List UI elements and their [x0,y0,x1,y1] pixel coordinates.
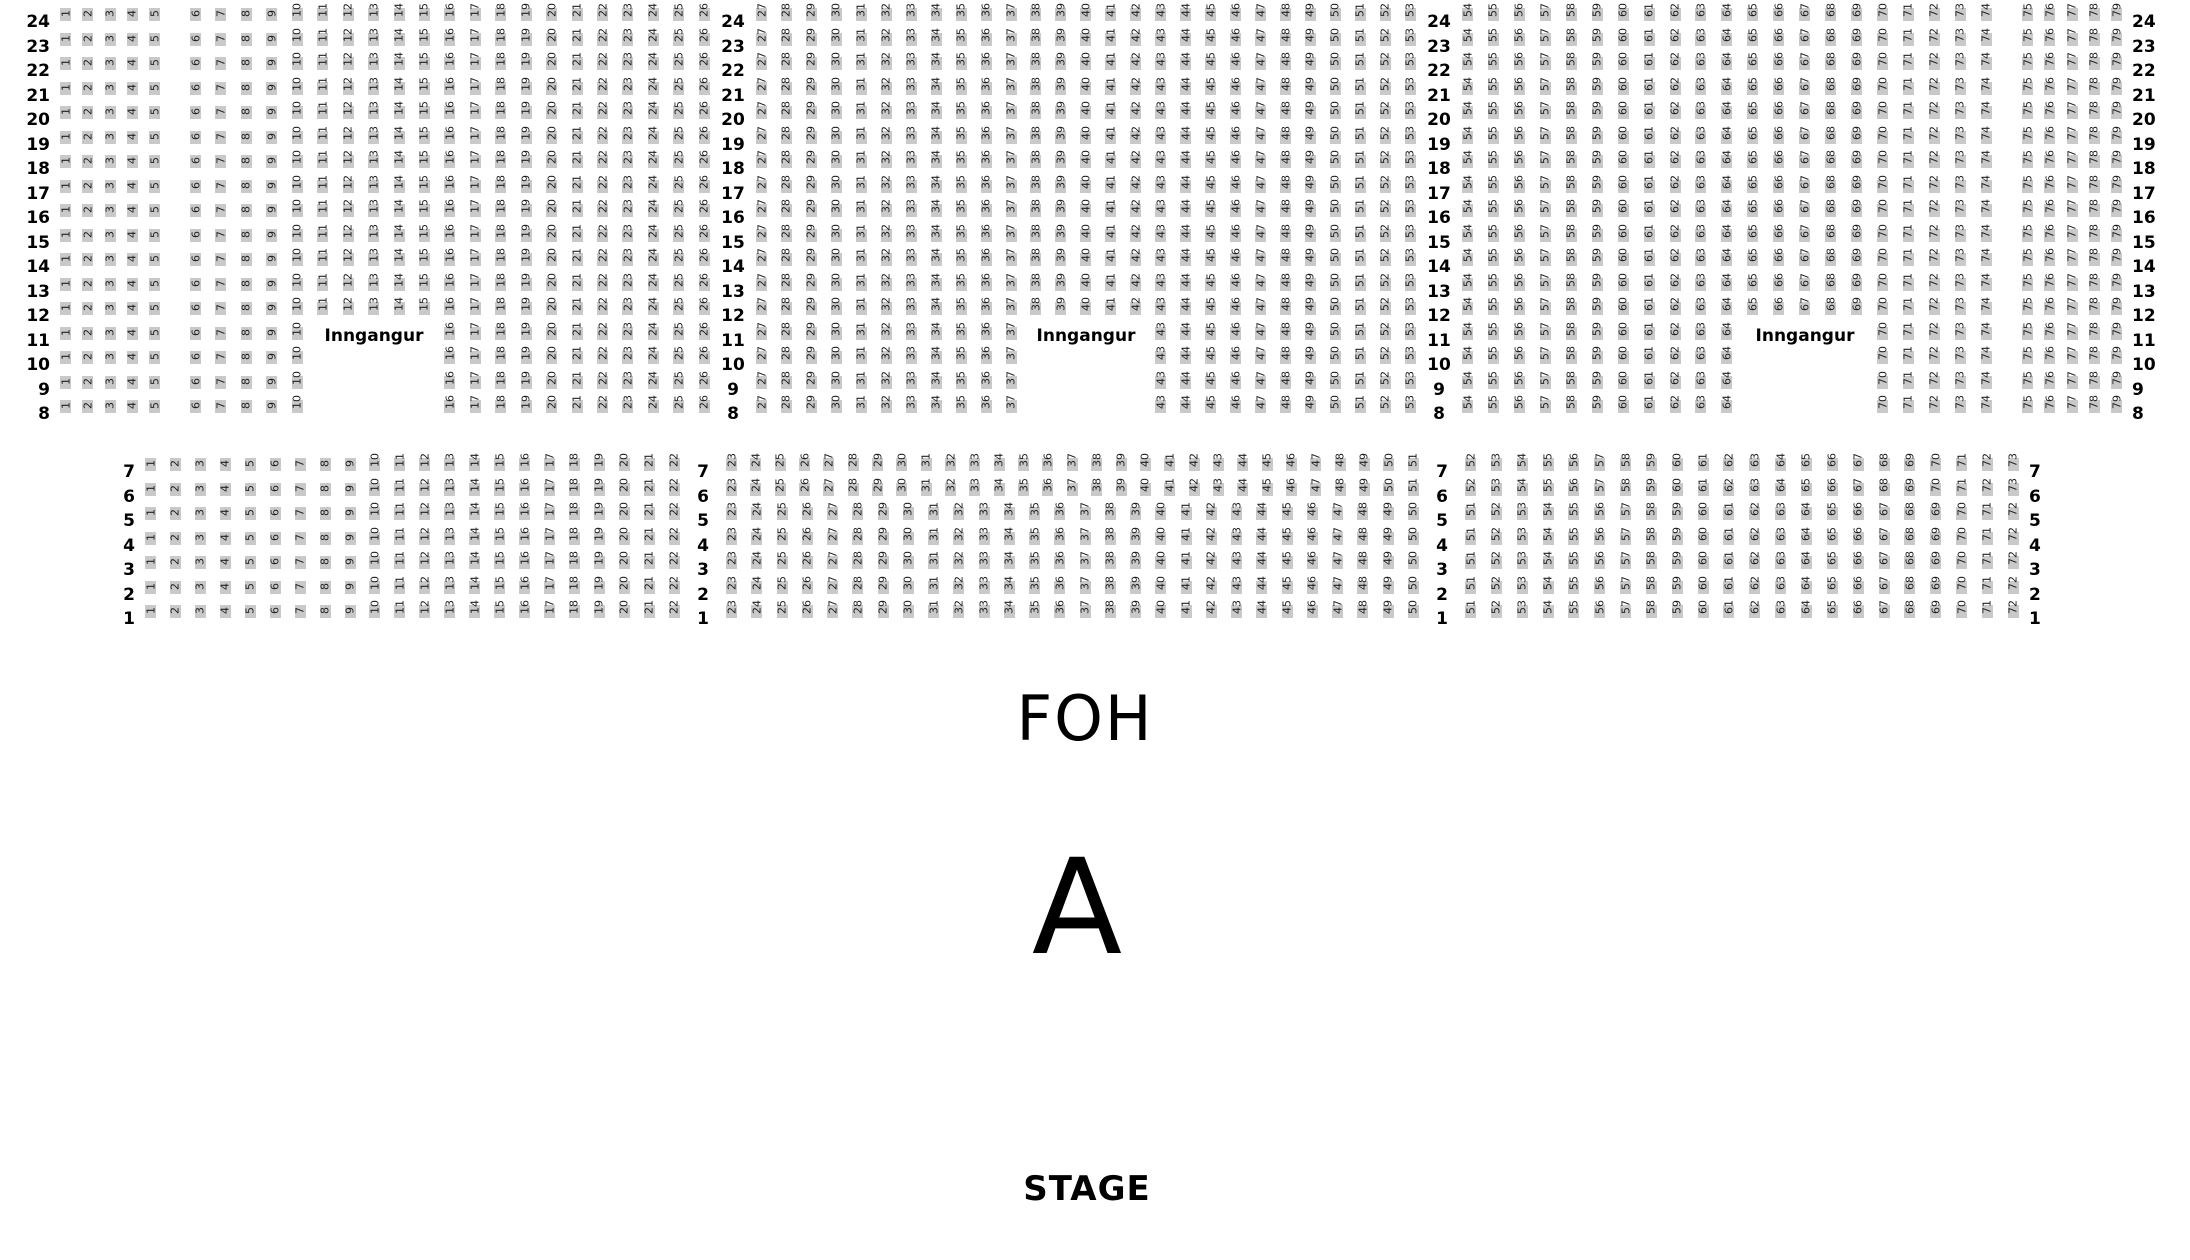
seat[interactable]: 41 [1105,278,1116,291]
seat[interactable]: 8 [320,581,331,594]
seat[interactable]: 76 [2044,253,2055,266]
seat[interactable]: 65 [1747,278,1758,291]
seat[interactable]: 20 [546,278,557,291]
seat[interactable]: 43 [1231,532,1242,545]
seat[interactable]: 12 [419,458,430,471]
seat[interactable]: 38 [1030,82,1041,95]
seat[interactable]: 16 [444,327,455,340]
seat[interactable]: 63 [1749,458,1760,471]
seat[interactable]: 17 [470,376,481,389]
seat[interactable]: 2 [170,605,181,618]
seat[interactable]: 67 [1879,581,1890,594]
seat[interactable]: 61 [1723,605,1734,618]
seat[interactable]: 69 [1851,82,1862,95]
seat[interactable]: 31 [856,57,867,70]
seat[interactable]: 60 [1698,532,1709,545]
seat[interactable]: 31 [856,327,867,340]
seat[interactable]: 62 [1670,278,1681,291]
seat[interactable]: 7 [215,204,226,217]
seat[interactable]: 10 [369,556,380,569]
seat[interactable]: 17 [470,253,481,266]
seat[interactable]: 39 [1055,204,1066,217]
seat[interactable]: 45 [1205,278,1216,291]
seat[interactable]: 17 [470,400,481,413]
seat[interactable]: 64 [1801,507,1812,520]
seat[interactable]: 1 [60,327,71,340]
seat[interactable]: 7 [215,327,226,340]
seat[interactable]: 39 [1055,180,1066,193]
seat[interactable]: 4 [220,532,231,545]
seat[interactable]: 27 [827,581,838,594]
seat[interactable]: 59 [1592,180,1603,193]
seat[interactable]: 15 [419,278,430,291]
seat[interactable]: 66 [1773,106,1784,119]
seat[interactable]: 72 [1929,400,1940,413]
seat[interactable]: 50 [1330,376,1341,389]
seat[interactable]: 67 [1799,278,1810,291]
seat[interactable]: 23 [726,532,737,545]
seat[interactable]: 40 [1080,57,1091,70]
seat[interactable]: 1 [145,581,156,594]
seat[interactable]: 74 [1981,204,1992,217]
seat[interactable]: 37 [1006,57,1017,70]
seat[interactable]: 8 [241,106,252,119]
seat[interactable]: 12 [419,605,430,618]
seat[interactable]: 34 [931,351,942,364]
seat[interactable]: 52 [1465,458,1476,471]
seat[interactable]: 75 [2022,131,2033,144]
seat[interactable]: 10 [369,581,380,594]
seat[interactable]: 42 [1130,278,1141,291]
seat[interactable]: 79 [2111,278,2122,291]
seat[interactable]: 15 [419,302,430,315]
seat[interactable]: 67 [1799,302,1810,315]
seat[interactable]: 33 [906,180,917,193]
seat[interactable]: 9 [345,458,356,471]
seat[interactable]: 47 [1255,33,1266,46]
seat[interactable]: 56 [1514,229,1525,242]
seat[interactable]: 1 [60,131,71,144]
seat[interactable]: 20 [619,532,630,545]
seat[interactable]: 31 [856,376,867,389]
seat[interactable]: 10 [292,33,303,46]
seat[interactable]: 24 [648,327,659,340]
seat[interactable]: 68 [1825,57,1836,70]
seat[interactable]: 10 [292,155,303,168]
seat[interactable]: 24 [750,458,761,471]
seat[interactable]: 23 [622,253,633,266]
seat[interactable]: 21 [644,605,655,618]
seat[interactable]: 63 [1695,33,1706,46]
seat[interactable]: 30 [831,253,842,266]
seat[interactable]: 52 [1491,581,1502,594]
seat[interactable]: 64 [1721,204,1732,217]
seat[interactable]: 47 [1332,556,1343,569]
seat[interactable]: 37 [1006,253,1017,266]
seat[interactable]: 73 [1955,376,1966,389]
seat[interactable]: 58 [1566,351,1577,364]
seat[interactable]: 74 [1981,229,1992,242]
seat[interactable]: 48 [1280,106,1291,119]
seat[interactable]: 74 [1981,82,1992,95]
seat[interactable]: 76 [2044,278,2055,291]
seat[interactable]: 7 [215,351,226,364]
seat[interactable]: 75 [2022,253,2033,266]
seat[interactable]: 60 [1698,556,1709,569]
seat[interactable]: 12 [419,556,430,569]
seat[interactable]: 12 [343,253,354,266]
seat[interactable]: 43 [1155,180,1166,193]
seat[interactable]: 34 [1004,507,1015,520]
seat[interactable]: 56 [1514,204,1525,217]
seat[interactable]: 36 [981,57,992,70]
seat[interactable]: 46 [1230,155,1241,168]
seat[interactable]: 57 [1540,204,1551,217]
seat[interactable]: 58 [1566,204,1577,217]
seat[interactable]: 77 [2067,229,2078,242]
seat[interactable]: 3 [195,507,206,520]
seat[interactable]: 29 [806,278,817,291]
seat[interactable]: 71 [1903,82,1914,95]
seat[interactable]: 16 [444,33,455,46]
seat[interactable]: 78 [2089,106,2100,119]
seat[interactable]: 16 [444,180,455,193]
seat[interactable]: 34 [931,229,942,242]
seat[interactable]: 73 [1955,400,1966,413]
seat[interactable]: 64 [1721,229,1732,242]
seat[interactable]: 23 [622,327,633,340]
seat[interactable]: 41 [1164,458,1175,471]
seat[interactable]: 19 [521,8,532,21]
seat[interactable]: 67 [1799,82,1810,95]
seat[interactable]: 60 [1698,507,1709,520]
seat[interactable]: 2 [82,278,93,291]
seat[interactable]: 6 [190,253,201,266]
seat[interactable]: 19 [594,532,605,545]
seat[interactable]: 68 [1904,581,1915,594]
seat[interactable]: 61 [1644,82,1655,95]
seat[interactable]: 35 [1029,556,1040,569]
seat[interactable]: 7 [215,229,226,242]
seat[interactable]: 33 [979,556,990,569]
seat[interactable]: 73 [1955,8,1966,21]
seat[interactable]: 28 [852,532,863,545]
seat[interactable]: 67 [1879,532,1890,545]
seat[interactable]: 10 [292,131,303,144]
seat[interactable]: 7 [215,33,226,46]
seat[interactable]: 65 [1747,33,1758,46]
seat[interactable]: 24 [648,131,659,144]
seat[interactable]: 32 [881,8,892,21]
seat[interactable]: 41 [1181,605,1192,618]
seat[interactable]: 3 [105,106,116,119]
seat[interactable]: 64 [1721,253,1732,266]
seat[interactable]: 60 [1618,376,1629,389]
seat[interactable]: 37 [1006,229,1017,242]
seat[interactable]: 65 [1747,302,1758,315]
seat[interactable]: 38 [1030,57,1041,70]
seat[interactable]: 13 [444,556,455,569]
seat[interactable]: 79 [2111,180,2122,193]
seat[interactable]: 43 [1155,106,1166,119]
seat[interactable]: 76 [2044,57,2055,70]
seat[interactable]: 29 [806,351,817,364]
seat[interactable]: 67 [1799,106,1810,119]
seat[interactable]: 70 [1877,376,1888,389]
seat[interactable]: 4 [127,82,138,95]
seat[interactable]: 78 [2089,155,2100,168]
seat[interactable]: 17 [470,278,481,291]
seat[interactable]: 37 [1067,458,1078,471]
seat[interactable]: 25 [673,204,684,217]
seat[interactable]: 30 [896,458,907,471]
seat[interactable]: 2 [82,327,93,340]
seat[interactable]: 40 [1080,131,1091,144]
seat[interactable]: 30 [831,8,842,21]
seat[interactable]: 70 [1956,605,1967,618]
seat[interactable]: 38 [1030,8,1041,21]
seat[interactable]: 53 [1517,532,1528,545]
seat[interactable]: 47 [1332,532,1343,545]
seat[interactable]: 39 [1055,155,1066,168]
seat[interactable]: 41 [1105,57,1116,70]
seat[interactable]: 77 [2067,204,2078,217]
seat[interactable]: 10 [292,57,303,70]
seat[interactable]: 8 [320,532,331,545]
seat[interactable]: 26 [699,57,710,70]
seat[interactable]: 17 [544,581,555,594]
seat[interactable]: 42 [1130,302,1141,315]
seat[interactable]: 26 [799,483,810,496]
seat[interactable]: 73 [1955,33,1966,46]
seat[interactable]: 10 [292,400,303,413]
seat[interactable]: 37 [1006,400,1017,413]
seat[interactable]: 69 [1851,180,1862,193]
seat[interactable]: 64 [1721,106,1732,119]
seat[interactable]: 36 [981,82,992,95]
seat[interactable]: 71 [1982,532,1993,545]
seat[interactable]: 37 [1006,351,1017,364]
seat[interactable]: 14 [394,302,405,315]
seat[interactable]: 55 [1488,302,1499,315]
seat[interactable]: 55 [1488,33,1499,46]
seat[interactable]: 68 [1825,302,1836,315]
seat[interactable]: 33 [906,400,917,413]
seat[interactable]: 54 [1462,180,1473,193]
seat[interactable]: 65 [1747,82,1758,95]
seat[interactable]: 30 [831,33,842,46]
seat[interactable]: 20 [546,302,557,315]
seat[interactable]: 25 [775,483,786,496]
seat[interactable]: 5 [149,131,160,144]
seat[interactable]: 59 [1672,507,1683,520]
seat[interactable]: 38 [1030,278,1041,291]
seat[interactable]: 23 [726,605,737,618]
seat[interactable]: 41 [1105,229,1116,242]
seat[interactable]: 34 [931,400,942,413]
seat[interactable]: 7 [295,532,306,545]
seat[interactable]: 77 [2067,106,2078,119]
seat[interactable]: 31 [856,33,867,46]
seat[interactable]: 51 [1355,327,1366,340]
seat[interactable]: 3 [105,351,116,364]
seat[interactable]: 39 [1055,253,1066,266]
seat[interactable]: 37 [1080,532,1091,545]
seat[interactable]: 30 [831,376,842,389]
seat[interactable]: 28 [781,155,792,168]
seat[interactable]: 25 [673,400,684,413]
seat[interactable]: 61 [1698,483,1709,496]
seat[interactable]: 59 [1646,483,1657,496]
seat[interactable]: 12 [343,8,354,21]
seat[interactable]: 54 [1462,33,1473,46]
seat[interactable]: 1 [145,532,156,545]
seat[interactable]: 57 [1540,327,1551,340]
seat[interactable]: 41 [1181,532,1192,545]
seat[interactable]: 2 [82,155,93,168]
seat[interactable]: 31 [921,458,932,471]
seat[interactable]: 28 [852,581,863,594]
seat[interactable]: 27 [756,376,767,389]
seat[interactable]: 26 [699,155,710,168]
seat[interactable]: 2 [170,581,181,594]
seat[interactable]: 68 [1825,131,1836,144]
seat[interactable]: 34 [1004,581,1015,594]
seat[interactable]: 14 [469,581,480,594]
seat[interactable]: 32 [881,106,892,119]
seat[interactable]: 56 [1594,581,1605,594]
seat[interactable]: 51 [1355,8,1366,21]
seat[interactable]: 48 [1280,302,1291,315]
seat[interactable]: 51 [1355,155,1366,168]
seat[interactable]: 45 [1205,376,1216,389]
seat[interactable]: 44 [1256,556,1267,569]
seat[interactable]: 28 [781,33,792,46]
seat[interactable]: 55 [1488,327,1499,340]
seat[interactable]: 69 [1930,556,1941,569]
seat[interactable]: 52 [1380,400,1391,413]
seat[interactable]: 56 [1514,155,1525,168]
seat[interactable]: 62 [1670,33,1681,46]
seat[interactable]: 50 [1383,458,1394,471]
seat[interactable]: 60 [1618,131,1629,144]
seat[interactable]: 71 [1903,400,1914,413]
seat[interactable]: 4 [127,376,138,389]
seat[interactable]: 32 [881,229,892,242]
seat[interactable]: 52 [1465,483,1476,496]
seat[interactable]: 37 [1080,581,1091,594]
seat[interactable]: 38 [1105,532,1116,545]
seat[interactable]: 4 [220,458,231,471]
seat[interactable]: 45 [1282,581,1293,594]
seat[interactable]: 44 [1180,327,1191,340]
seat[interactable]: 45 [1205,229,1216,242]
seat[interactable]: 43 [1231,605,1242,618]
seat[interactable]: 57 [1540,253,1551,266]
seat[interactable]: 67 [1799,131,1810,144]
seat[interactable]: 30 [831,302,842,315]
seat[interactable]: 34 [931,131,942,144]
seat[interactable]: 6 [190,8,201,21]
seat[interactable]: 14 [394,278,405,291]
seat[interactable]: 76 [2044,327,2055,340]
seat[interactable]: 8 [241,8,252,21]
seat[interactable]: 13 [368,33,379,46]
seat[interactable]: 78 [2089,278,2100,291]
seat[interactable]: 18 [495,302,506,315]
seat[interactable]: 21 [572,253,583,266]
seat[interactable]: 29 [806,376,817,389]
seat[interactable]: 21 [644,507,655,520]
seat[interactable]: 38 [1105,605,1116,618]
seat[interactable]: 45 [1205,8,1216,21]
seat[interactable]: 21 [644,458,655,471]
seat[interactable]: 26 [699,204,710,217]
seat[interactable]: 3 [105,8,116,21]
seat[interactable]: 48 [1357,507,1368,520]
seat[interactable]: 62 [1670,180,1681,193]
seat[interactable]: 13 [444,458,455,471]
seat[interactable]: 46 [1230,278,1241,291]
seat[interactable]: 57 [1540,106,1551,119]
seat[interactable]: 62 [1670,57,1681,70]
seat[interactable]: 26 [802,581,813,594]
seat[interactable]: 12 [419,507,430,520]
seat[interactable]: 42 [1206,605,1217,618]
seat[interactable]: 56 [1514,327,1525,340]
seat[interactable]: 19 [521,204,532,217]
seat[interactable]: 21 [644,556,655,569]
seat[interactable]: 60 [1618,327,1629,340]
seat[interactable]: 46 [1230,229,1241,242]
seat[interactable]: 33 [906,131,917,144]
seat[interactable]: 46 [1230,131,1241,144]
seat[interactable]: 64 [1721,302,1732,315]
seat[interactable]: 39 [1055,302,1066,315]
seat[interactable]: 27 [823,483,834,496]
seat[interactable]: 23 [622,302,633,315]
seat[interactable]: 1 [145,507,156,520]
seat[interactable]: 1 [145,605,156,618]
seat[interactable]: 32 [881,327,892,340]
seat[interactable]: 32 [881,204,892,217]
seat[interactable]: 66 [1773,180,1784,193]
seat[interactable]: 28 [781,8,792,21]
seat[interactable]: 43 [1155,376,1166,389]
seat[interactable]: 12 [419,483,430,496]
seat[interactable]: 34 [931,155,942,168]
seat[interactable]: 31 [921,483,932,496]
seat[interactable]: 66 [1773,57,1784,70]
seat[interactable]: 39 [1130,581,1141,594]
seat[interactable]: 55 [1543,483,1554,496]
seat[interactable]: 9 [266,278,277,291]
seat[interactable]: 36 [981,180,992,193]
seat[interactable]: 38 [1030,155,1041,168]
seat[interactable]: 46 [1307,556,1318,569]
seat[interactable]: 70 [1877,57,1888,70]
seat[interactable]: 8 [241,204,252,217]
seat[interactable]: 45 [1282,556,1293,569]
seat[interactable]: 50 [1408,581,1419,594]
seat[interactable]: 22 [669,556,680,569]
seat[interactable]: 31 [856,204,867,217]
seat[interactable]: 75 [2022,33,2033,46]
seat[interactable]: 57 [1540,229,1551,242]
seat[interactable]: 13 [368,278,379,291]
seat[interactable]: 40 [1080,82,1091,95]
seat[interactable]: 51 [1355,302,1366,315]
